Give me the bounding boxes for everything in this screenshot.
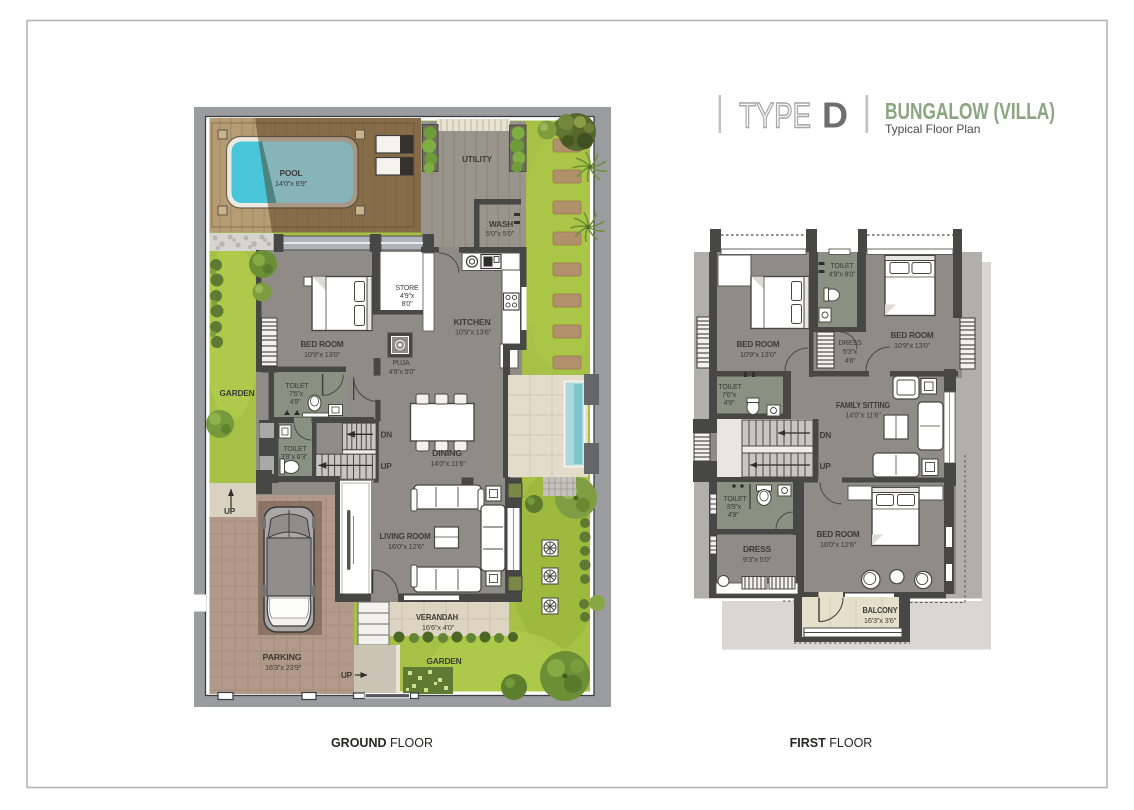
svg-text:4'9"x: 4'9"x	[400, 293, 415, 300]
svg-text:TOILET: TOILET	[285, 383, 309, 390]
svg-text:UP: UP	[341, 670, 353, 680]
svg-text:10'9"x 13'0": 10'9"x 13'0"	[894, 341, 931, 350]
svg-text:FIRST FLOOR: FIRST FLOOR	[790, 736, 873, 750]
svg-text:14'0"x 11'6": 14'0"x 11'6"	[430, 459, 466, 468]
svg-text:UP: UP	[820, 461, 832, 471]
svg-text:14'0"x 6'9": 14'0"x 6'9"	[275, 179, 308, 188]
svg-text:VERANDAH: VERANDAH	[416, 612, 458, 622]
svg-text:5'0"x 5'0": 5'0"x 5'0"	[486, 229, 515, 238]
svg-text:14'0"x 11'6": 14'0"x 11'6"	[845, 411, 881, 420]
svg-text:GARDEN: GARDEN	[427, 656, 462, 666]
svg-text:9'3"x 5'0": 9'3"x 5'0"	[743, 555, 772, 564]
svg-text:LIVING ROOM: LIVING ROOM	[380, 531, 431, 541]
svg-text:BED ROOM: BED ROOM	[891, 330, 934, 340]
svg-text:DINING: DINING	[432, 448, 462, 458]
svg-text:16'0"x 12'6": 16'0"x 12'6"	[388, 542, 425, 551]
svg-text:4'6": 4'6"	[845, 358, 857, 365]
svg-text:DN: DN	[820, 430, 832, 440]
svg-text:FAMILY SITTING: FAMILY SITTING	[836, 400, 890, 410]
svg-text:4'9": 4'9"	[290, 399, 302, 406]
svg-text:5'3"x: 5'3"x	[843, 349, 858, 356]
svg-text:16'3"x 23'9": 16'3"x 23'9"	[265, 663, 302, 672]
svg-text:BED ROOM: BED ROOM	[737, 339, 780, 349]
svg-text:TOILET: TOILET	[283, 446, 307, 453]
svg-text:GARDEN: GARDEN	[220, 388, 255, 398]
svg-text:10'9"x 13'0": 10'9"x 13'0"	[740, 350, 777, 359]
svg-text:16'3"x 3'6": 16'3"x 3'6"	[864, 616, 897, 625]
svg-text:UP: UP	[381, 461, 393, 471]
svg-text:DRESS: DRESS	[838, 340, 862, 347]
svg-text:10'9"x 13'6": 10'9"x 13'6"	[455, 328, 492, 337]
svg-text:8'0": 8'0"	[402, 301, 414, 308]
svg-text:UP: UP	[224, 506, 236, 516]
svg-text:UTILITY: UTILITY	[462, 154, 493, 164]
svg-text:4'9": 4'9"	[728, 512, 740, 519]
svg-text:8'9"x: 8'9"x	[727, 504, 742, 511]
svg-text:DRESS: DRESS	[743, 544, 772, 554]
svg-text:WASH: WASH	[489, 219, 513, 229]
svg-text:BALCONY: BALCONY	[863, 605, 899, 615]
svg-text:PUJA: PUJA	[392, 360, 410, 367]
svg-text:7'6"x: 7'6"x	[722, 392, 737, 399]
svg-text:16'6"x 4'0": 16'6"x 4'0"	[422, 623, 455, 632]
svg-text:BUNGALOW (VILLA): BUNGALOW (VILLA)	[885, 98, 1055, 124]
svg-text:GROUND FLOOR: GROUND FLOOR	[331, 736, 433, 750]
svg-text:PARKING: PARKING	[263, 652, 302, 662]
svg-text:16'0"x 12'6": 16'0"x 12'6"	[820, 540, 857, 549]
svg-text:7'6"x: 7'6"x	[289, 391, 304, 398]
svg-text:4'9": 4'9"	[724, 400, 736, 407]
svg-text:TOILET: TOILET	[723, 496, 747, 503]
svg-text:STORE: STORE	[396, 285, 420, 292]
svg-text:4'9"x 8'0": 4'9"x 8'0"	[829, 272, 856, 279]
svg-text:TYPE: TYPE	[739, 97, 811, 136]
svg-text:Typical Floor Plan: Typical Floor Plan	[885, 122, 980, 136]
svg-text:TOILET: TOILET	[718, 384, 742, 391]
svg-text:KITCHEN: KITCHEN	[454, 317, 491, 327]
svg-text:BED ROOM: BED ROOM	[817, 529, 860, 539]
svg-text:TOILET: TOILET	[830, 263, 854, 270]
svg-text:BED ROOM: BED ROOM	[301, 339, 344, 349]
svg-text:10'9"x 13'0": 10'9"x 13'0"	[304, 350, 341, 359]
svg-text:D: D	[822, 95, 848, 136]
svg-text:4'9"x 5'0": 4'9"x 5'0"	[389, 369, 416, 376]
svg-text:POOL: POOL	[280, 168, 303, 178]
svg-text:DN: DN	[381, 430, 393, 440]
